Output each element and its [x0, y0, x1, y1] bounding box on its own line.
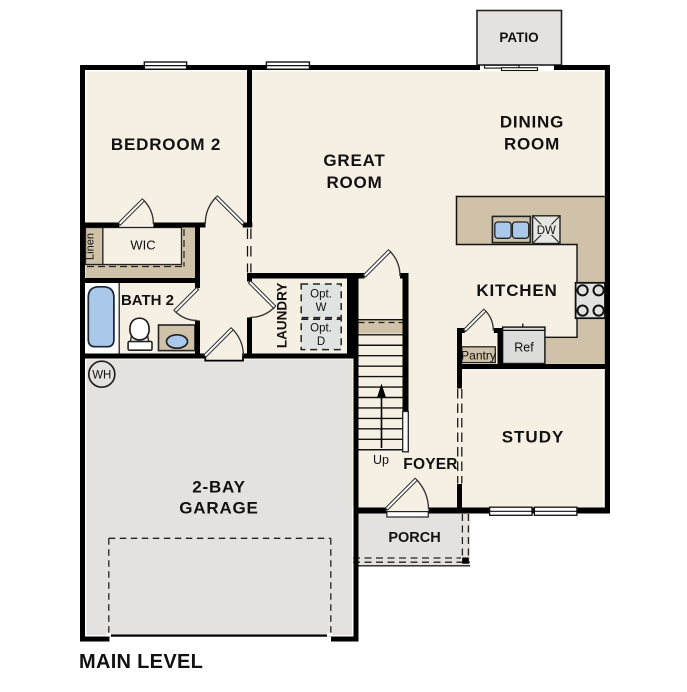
- svg-text:Opt.: Opt.: [310, 289, 332, 301]
- svg-text:KITCHEN: KITCHEN: [476, 281, 557, 300]
- svg-text:DW: DW: [537, 225, 556, 237]
- svg-text:PORCH: PORCH: [388, 530, 440, 546]
- svg-text:DINING: DINING: [500, 112, 564, 131]
- svg-text:PATIO: PATIO: [499, 30, 538, 45]
- svg-text:ROOM: ROOM: [504, 134, 560, 153]
- svg-text:ROOM: ROOM: [326, 173, 382, 192]
- svg-text:Ref: Ref: [514, 341, 534, 355]
- svg-text:FOYER: FOYER: [403, 456, 457, 473]
- svg-text:D: D: [317, 336, 325, 348]
- svg-text:W: W: [316, 302, 327, 314]
- svg-text:Pantry: Pantry: [461, 348, 496, 362]
- svg-text:GREAT: GREAT: [323, 151, 385, 170]
- svg-text:MAIN LEVEL: MAIN LEVEL: [79, 651, 203, 673]
- svg-text:Linen: Linen: [85, 233, 97, 260]
- svg-text:Up: Up: [373, 453, 389, 467]
- svg-text:WIC: WIC: [130, 238, 155, 253]
- svg-text:BATH 2: BATH 2: [121, 292, 174, 309]
- svg-text:2-BAY: 2-BAY: [192, 478, 245, 497]
- svg-text:BEDROOM 2: BEDROOM 2: [111, 135, 221, 154]
- svg-text:STUDY: STUDY: [502, 428, 565, 447]
- svg-text:WH: WH: [92, 370, 111, 382]
- svg-text:LAUNDRY: LAUNDRY: [275, 283, 290, 349]
- svg-text:Opt.: Opt.: [310, 323, 332, 335]
- svg-text:GARAGE: GARAGE: [179, 499, 258, 518]
